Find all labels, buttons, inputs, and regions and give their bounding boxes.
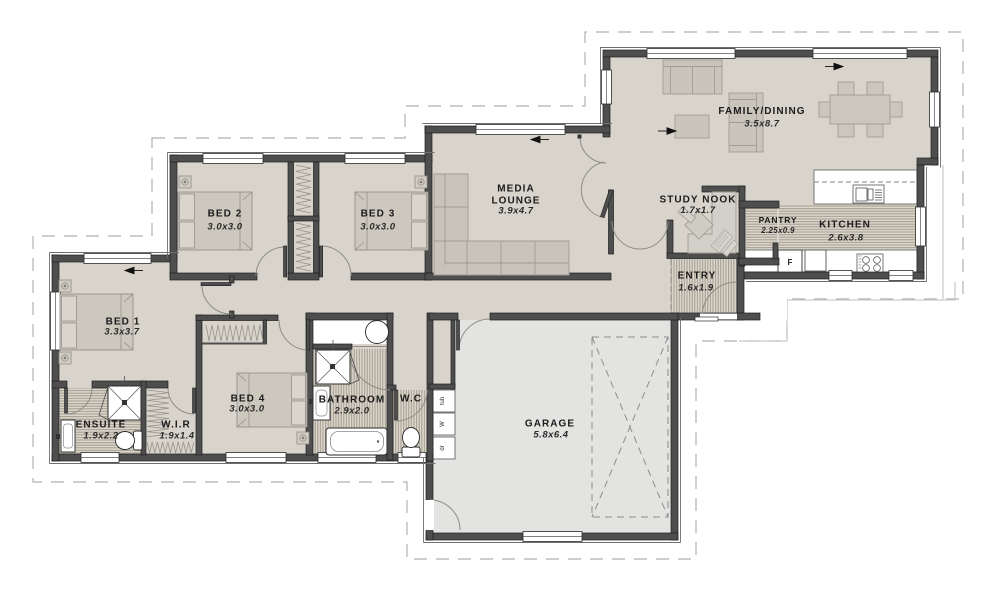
svg-text:ENTRY: ENTRY (678, 271, 717, 282)
svg-text:W: W (440, 421, 446, 427)
svg-text:BATHROOM: BATHROOM (319, 395, 386, 406)
svg-text:1.7x1.7: 1.7x1.7 (680, 205, 715, 216)
svg-text:tub: tub (440, 396, 446, 405)
svg-text:2.25x0.9: 2.25x0.9 (760, 226, 795, 235)
svg-text:5.8x6.4: 5.8x6.4 (533, 430, 568, 441)
svg-text:F: F (788, 258, 793, 267)
svg-text:MEDIA: MEDIA (497, 184, 534, 195)
svg-text:ENSUITE: ENSUITE (76, 420, 127, 431)
svg-text:1.9x1.4: 1.9x1.4 (159, 431, 194, 442)
svg-text:3.5x8.7: 3.5x8.7 (744, 119, 779, 130)
svg-text:2.9x2.0: 2.9x2.0 (333, 406, 369, 417)
svg-text:BED 2: BED 2 (208, 209, 243, 220)
svg-text:dr: dr (440, 445, 446, 450)
svg-text:STUDY NOOK: STUDY NOOK (660, 195, 737, 206)
svg-text:W.C: W.C (400, 394, 422, 405)
svg-text:PANTRY: PANTRY (759, 215, 798, 225)
svg-text:1.9x2.2: 1.9x2.2 (83, 431, 118, 442)
svg-text:3.0x3.0: 3.0x3.0 (207, 222, 242, 233)
svg-text:3.9x4.7: 3.9x4.7 (498, 206, 533, 217)
svg-text:2.6x3.8: 2.6x3.8 (827, 233, 863, 244)
svg-text:BED 3: BED 3 (361, 209, 396, 220)
svg-text:W.I.R: W.I.R (161, 420, 191, 431)
svg-text:3.0x3.0: 3.0x3.0 (229, 404, 264, 415)
svg-text:3.0x3.0: 3.0x3.0 (360, 222, 395, 233)
svg-text:KITCHEN: KITCHEN (819, 220, 871, 231)
svg-text:3.3x3.7: 3.3x3.7 (104, 327, 139, 338)
svg-text:FAMILY/DINING: FAMILY/DINING (718, 106, 805, 117)
svg-text:1.6x1.9: 1.6x1.9 (678, 283, 713, 294)
svg-text:GARAGE: GARAGE (525, 419, 575, 430)
